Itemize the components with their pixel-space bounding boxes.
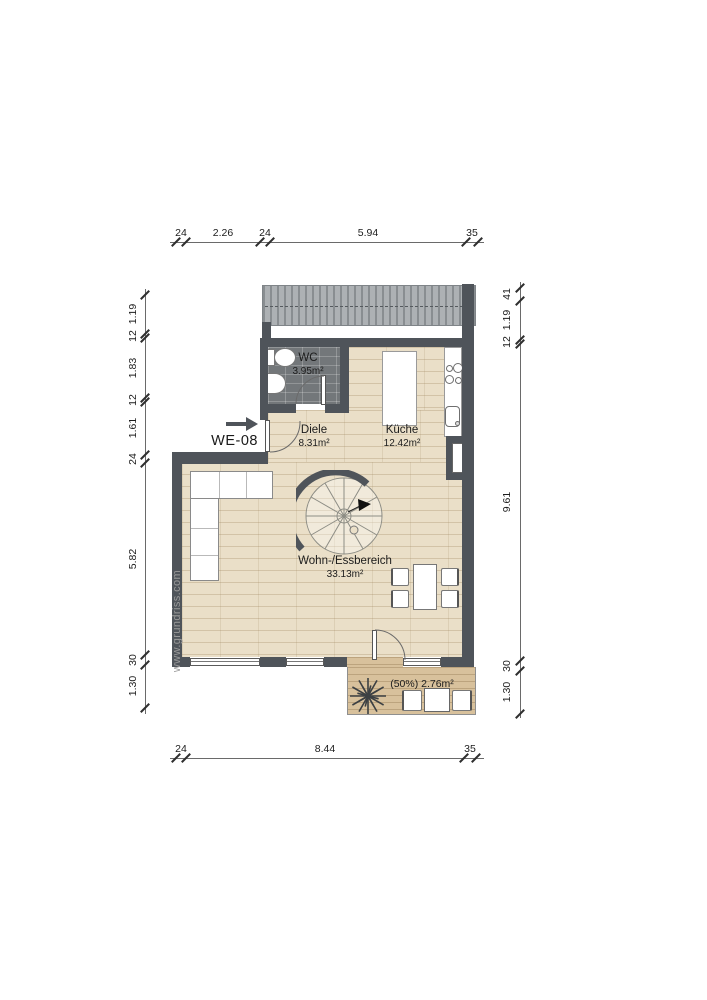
dimension-label: 12: [127, 330, 139, 342]
dimension-label: 5.82: [127, 549, 139, 569]
dining-chair: [391, 590, 409, 608]
wall-bottom-pier-1: [260, 657, 286, 667]
room-name: Diele: [298, 424, 329, 438]
stove-burner-icon: [445, 375, 454, 384]
sink-faucet-icon: [455, 421, 460, 426]
room-label-wohnen: Wohn-/Essbereich 33.13m²: [298, 555, 392, 581]
room-area: 33.13m²: [298, 569, 392, 581]
wall-bottom-pier-2: [324, 657, 347, 667]
sofa-seam: [191, 555, 218, 556]
dimension-label: 1.83: [127, 358, 139, 378]
dimension-label: 12: [127, 394, 139, 406]
room-name: WC: [292, 352, 323, 366]
dimension-label: 1.30: [127, 676, 139, 696]
sofa-seam: [191, 528, 218, 529]
canopy-dash-line: [265, 306, 473, 307]
entry-arrow-icon: [226, 417, 258, 431]
dimension-line: [170, 242, 484, 243]
sofa-seam: [219, 472, 220, 498]
room-name: Küche: [384, 424, 421, 438]
balcony-chair: [452, 690, 472, 711]
dining-chair: [441, 568, 459, 586]
dimension-label: 8.44: [315, 743, 335, 755]
dimension-line: [145, 289, 146, 714]
dimension-line: [170, 758, 484, 759]
room-area: (50%) 2.76m²: [390, 678, 454, 691]
balcony-table: [424, 688, 450, 712]
dining-table: [413, 564, 437, 610]
room-label-kueche: Küche 12.42m²: [384, 424, 421, 450]
dimension-label: 1.30: [501, 682, 513, 702]
dimension-label: 24: [175, 227, 187, 239]
room-label-wc: WC 3.95m²: [292, 352, 323, 378]
sofa-seam: [246, 472, 247, 498]
kitchen-island: [382, 351, 417, 426]
room-area: 8.31m²: [298, 438, 329, 450]
balcony-chair: [402, 690, 422, 711]
unit-label: WE-08: [196, 433, 258, 449]
dimension-label: 2.26: [213, 227, 233, 239]
floor-plan-page: WC 3.95m² Diele 8.31m² Küche 12.42m² Woh…: [0, 0, 707, 1000]
dimension-label: 1.19: [127, 304, 139, 324]
sofa-horizontal: [190, 471, 273, 499]
room-area: 3.95m²: [292, 366, 323, 378]
canopy-roof: [262, 285, 476, 326]
dimension-label: 12: [501, 336, 513, 348]
dimension-label: 9.61: [501, 492, 513, 512]
spiral-staircase: [296, 470, 392, 566]
dimension-label: 30: [501, 660, 513, 672]
wall-right: [462, 284, 474, 667]
plant-icon: [346, 674, 390, 718]
wall-bottom-right: [441, 657, 474, 667]
wall-entry-step: [172, 452, 268, 464]
window: [286, 658, 324, 666]
dimension-label: 1.19: [501, 310, 513, 330]
room-label-balkon: (50%) 2.76m²: [390, 678, 454, 691]
wall-wc-kitchen-divider: [340, 338, 349, 413]
wall-top: [262, 338, 474, 347]
balcony-door-arc: [371, 626, 409, 664]
wall-wc-bottom-right: [325, 404, 348, 413]
dimension-label: 24: [175, 743, 187, 755]
sofa-vertical: [190, 498, 219, 581]
room-name: Wohn-/Essbereich: [298, 555, 392, 569]
dimension-label: 5.94: [358, 227, 378, 239]
stove-burner-icon: [446, 365, 453, 372]
dimension-label: 24: [259, 227, 271, 239]
room-area: 12.42m²: [384, 438, 421, 450]
dining-chair: [391, 568, 409, 586]
dimension-label: 41: [501, 288, 513, 300]
dining-chair: [441, 590, 459, 608]
dimension-line: [520, 282, 521, 718]
dimension-label: 35: [466, 227, 478, 239]
dimension-label: 30: [127, 654, 139, 666]
watermark: www.grundriss.com: [171, 570, 183, 672]
wall-wc-bottom-left: [260, 404, 296, 413]
room-label-diele: Diele 8.31m²: [298, 424, 329, 450]
dimension-label: 1.61: [127, 418, 139, 438]
dimension-label: 24: [127, 453, 139, 465]
stove-burner-icon: [455, 377, 462, 384]
window: [190, 658, 260, 666]
dimension-label: 35: [464, 743, 476, 755]
